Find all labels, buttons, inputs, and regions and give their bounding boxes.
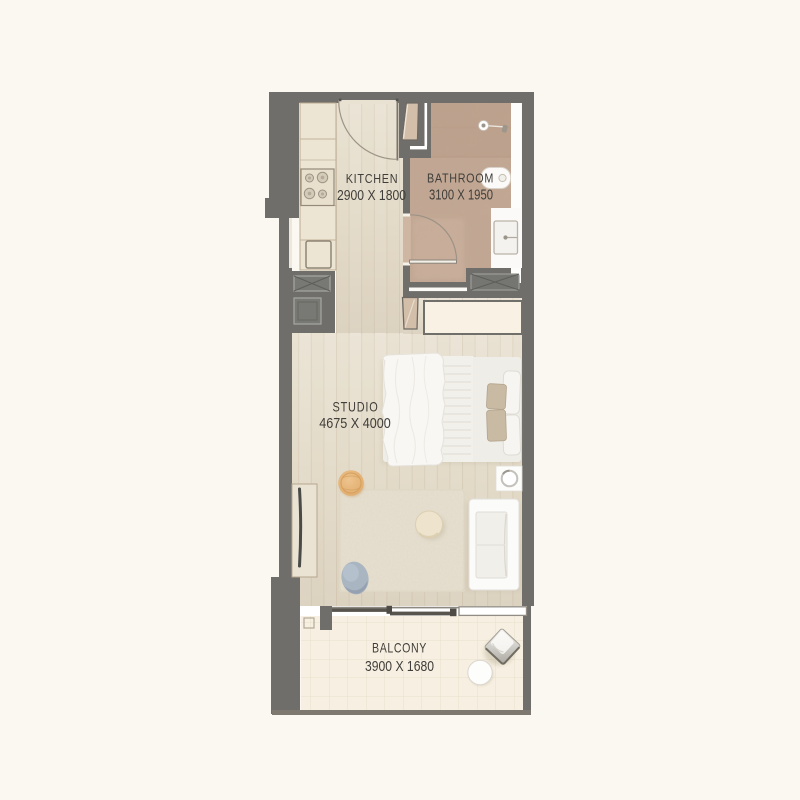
svg-text:4675 X 4000: 4675 X 4000 xyxy=(319,416,391,432)
svg-text:STUDIO: STUDIO xyxy=(333,398,379,414)
svg-text:3100 X 1950: 3100 X 1950 xyxy=(429,188,493,204)
svg-text:BATHROOM: BATHROOM xyxy=(427,171,494,185)
svg-text:2900 X 1800: 2900 X 1800 xyxy=(337,188,406,204)
svg-text:BALCONY: BALCONY xyxy=(372,639,427,655)
svg-text:KITCHEN: KITCHEN xyxy=(346,172,399,186)
svg-text:3900 X 1680: 3900 X 1680 xyxy=(365,659,434,675)
